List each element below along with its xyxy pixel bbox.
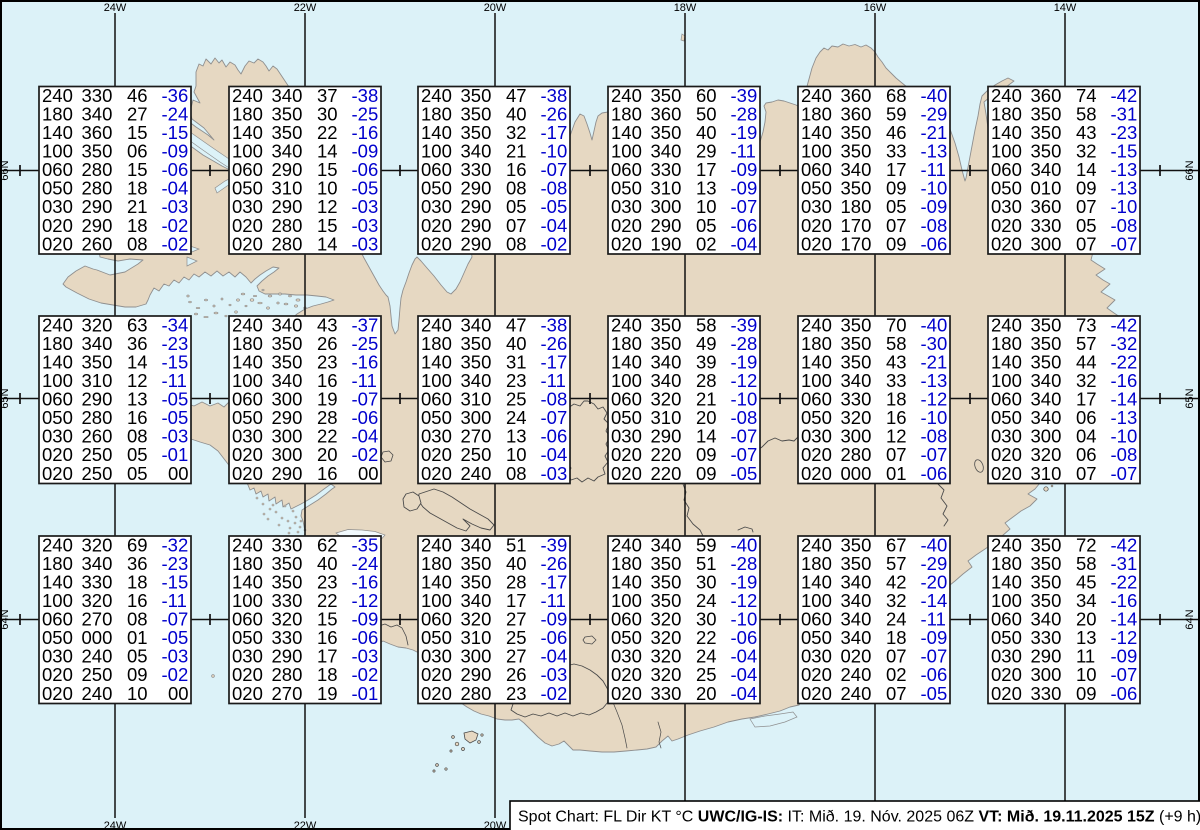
svg-text:220: 220 — [651, 463, 682, 484]
svg-text:020: 020 — [611, 683, 642, 704]
svg-text:22W: 22W — [294, 2, 317, 14]
svg-text:020: 020 — [611, 463, 642, 484]
svg-text:-05: -05 — [731, 463, 758, 484]
svg-text:020: 020 — [232, 463, 263, 484]
svg-text:020: 020 — [421, 463, 452, 484]
svg-text:14: 14 — [317, 233, 338, 254]
svg-text:02: 02 — [696, 233, 717, 254]
svg-text:09: 09 — [1076, 683, 1097, 704]
svg-text:-05: -05 — [921, 683, 948, 704]
svg-text:020: 020 — [991, 233, 1022, 254]
svg-text:020: 020 — [991, 683, 1022, 704]
svg-text:330: 330 — [1031, 683, 1062, 704]
svg-text:190: 190 — [651, 233, 682, 254]
svg-text:250: 250 — [82, 463, 113, 484]
svg-text:020: 020 — [42, 683, 73, 704]
svg-text:Spot Chart: FL Dir KT °C UWC/I: Spot Chart: FL Dir KT °C UWC/IG-IS: IT: … — [518, 809, 1200, 826]
svg-text:08: 08 — [127, 233, 148, 254]
svg-text:07: 07 — [886, 683, 907, 704]
svg-text:020: 020 — [42, 463, 73, 484]
svg-text:020: 020 — [421, 683, 452, 704]
svg-text:09: 09 — [886, 233, 907, 254]
svg-text:05: 05 — [127, 463, 148, 484]
svg-text:65N: 65N — [1184, 388, 1196, 408]
svg-text:16: 16 — [317, 463, 338, 484]
svg-text:020: 020 — [421, 233, 452, 254]
svg-text:020: 020 — [232, 683, 263, 704]
svg-text:-07: -07 — [1111, 463, 1138, 484]
svg-text:240: 240 — [841, 683, 872, 704]
svg-text:16W: 16W — [864, 2, 887, 14]
svg-text:310: 310 — [1031, 463, 1062, 484]
svg-text:-06: -06 — [921, 463, 948, 484]
svg-text:-04: -04 — [731, 683, 758, 704]
svg-text:-02: -02 — [541, 683, 568, 704]
svg-text:-06: -06 — [921, 233, 948, 254]
svg-text:14W: 14W — [1054, 2, 1077, 14]
svg-text:00: 00 — [168, 683, 189, 704]
svg-text:240: 240 — [82, 683, 113, 704]
svg-text:280: 280 — [272, 233, 303, 254]
svg-text:23: 23 — [506, 683, 527, 704]
svg-text:330: 330 — [651, 683, 682, 704]
svg-text:07: 07 — [1076, 463, 1097, 484]
svg-text:170: 170 — [841, 233, 872, 254]
svg-text:07: 07 — [1076, 233, 1097, 254]
svg-text:020: 020 — [801, 463, 832, 484]
svg-text:020: 020 — [991, 463, 1022, 484]
svg-text:-02: -02 — [541, 233, 568, 254]
svg-text:020: 020 — [232, 233, 263, 254]
svg-text:00: 00 — [358, 463, 379, 484]
svg-text:01: 01 — [886, 463, 907, 484]
svg-text:08: 08 — [506, 233, 527, 254]
svg-text:260: 260 — [82, 233, 113, 254]
svg-text:-07: -07 — [1111, 233, 1138, 254]
svg-text:000: 000 — [841, 463, 872, 484]
svg-text:20: 20 — [696, 683, 717, 704]
svg-text:290: 290 — [461, 233, 492, 254]
svg-text:20W: 20W — [484, 2, 507, 14]
svg-text:-02: -02 — [162, 233, 189, 254]
svg-text:19: 19 — [317, 683, 338, 704]
svg-text:020: 020 — [42, 233, 73, 254]
svg-text:-04: -04 — [731, 233, 758, 254]
svg-text:020: 020 — [801, 233, 832, 254]
svg-text:08: 08 — [506, 463, 527, 484]
svg-text:66N: 66N — [1184, 160, 1196, 180]
svg-text:020: 020 — [801, 683, 832, 704]
svg-text:240: 240 — [461, 463, 492, 484]
svg-text:18W: 18W — [674, 2, 697, 14]
svg-text:270: 270 — [272, 683, 303, 704]
svg-text:64N: 64N — [1184, 609, 1196, 629]
svg-text:00: 00 — [168, 463, 189, 484]
svg-text:280: 280 — [461, 683, 492, 704]
svg-text:290: 290 — [272, 463, 303, 484]
svg-text:020: 020 — [611, 233, 642, 254]
svg-text:-06: -06 — [1111, 683, 1138, 704]
svg-text:-03: -03 — [352, 233, 379, 254]
svg-text:09: 09 — [696, 463, 717, 484]
svg-text:24W: 24W — [104, 2, 127, 14]
svg-text:-03: -03 — [541, 463, 568, 484]
svg-text:-01: -01 — [352, 683, 379, 704]
svg-text:300: 300 — [1031, 233, 1062, 254]
svg-text:10: 10 — [127, 683, 148, 704]
